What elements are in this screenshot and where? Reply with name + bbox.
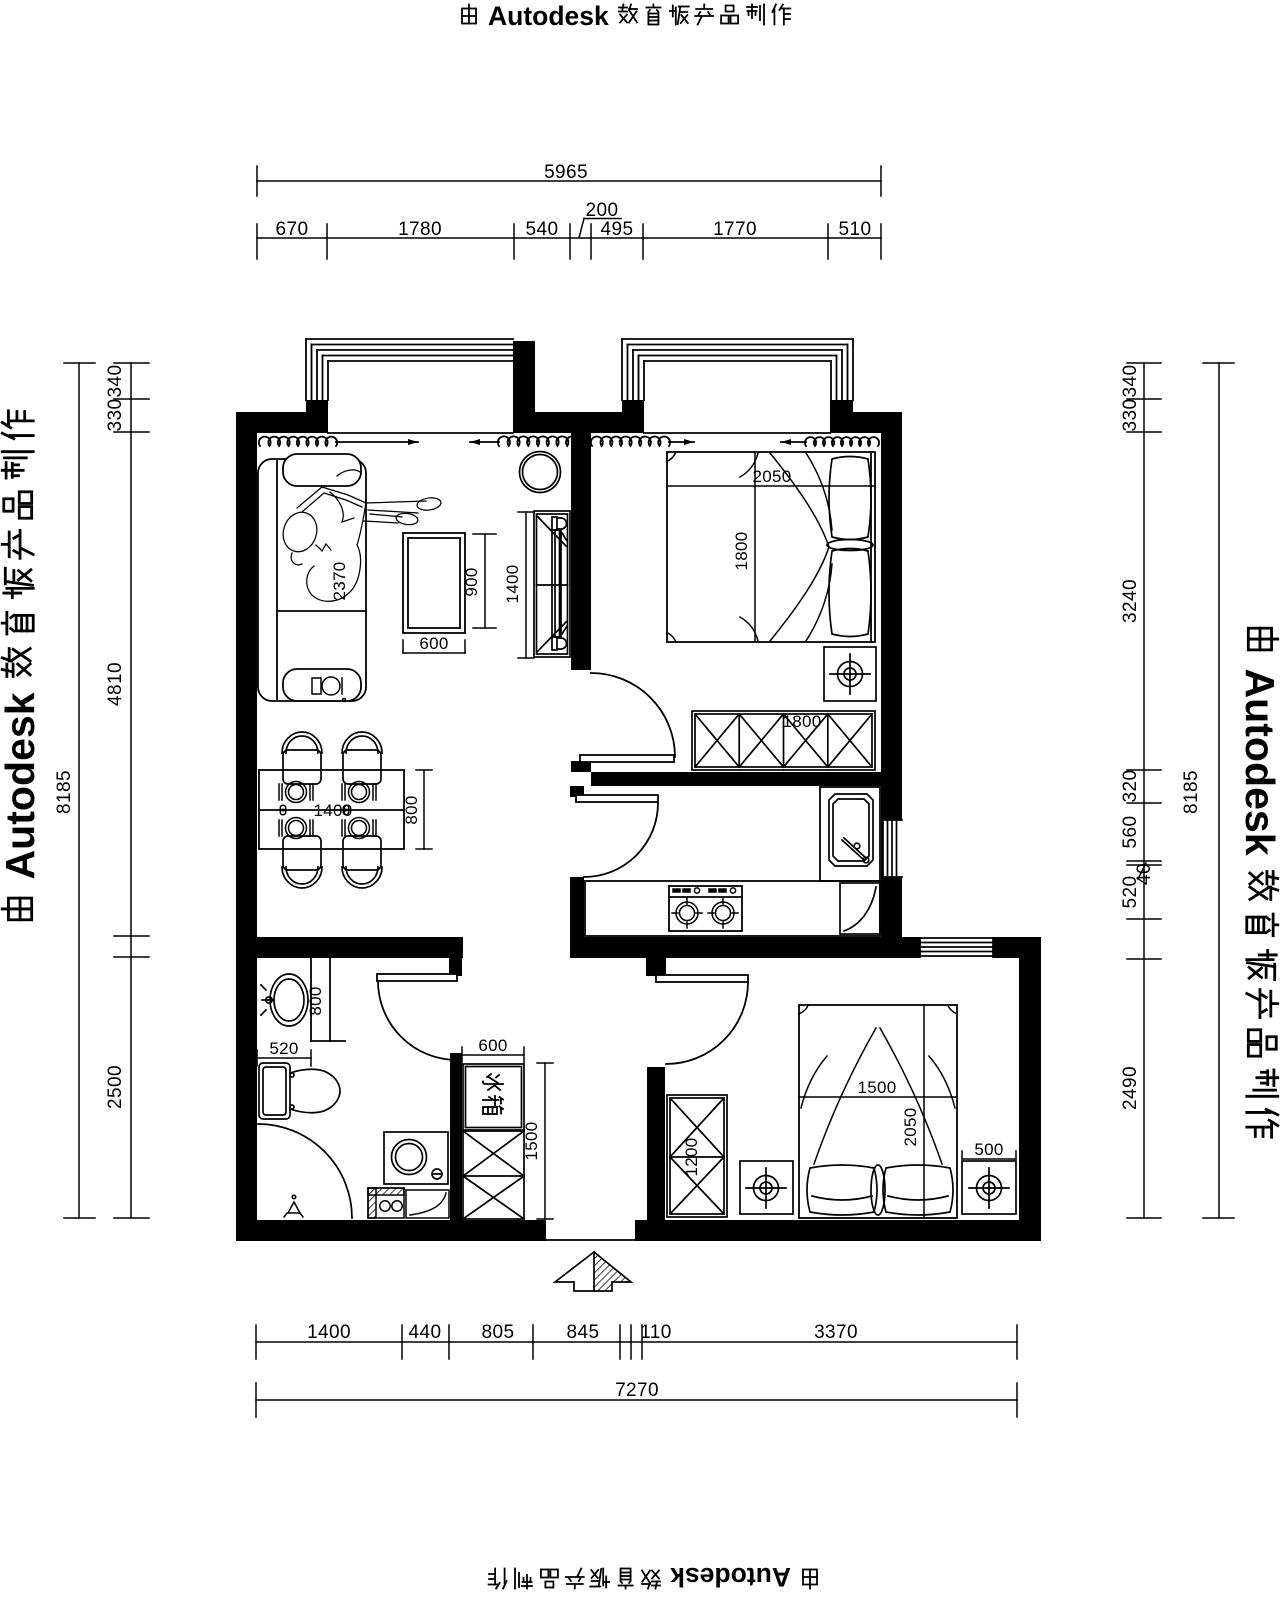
- svg-text:845: 845: [567, 1322, 600, 1343]
- svg-text:670: 670: [276, 219, 309, 240]
- svg-text:600: 600: [419, 634, 448, 653]
- svg-text:2370: 2370: [330, 561, 349, 600]
- svg-text:330: 330: [105, 399, 126, 432]
- svg-text:1770: 1770: [713, 219, 757, 240]
- svg-text:5965: 5965: [544, 162, 588, 183]
- svg-text:1200: 1200: [682, 1137, 701, 1176]
- svg-text:1400: 1400: [503, 564, 522, 603]
- svg-text:7270: 7270: [615, 1380, 659, 1401]
- svg-text:1500: 1500: [857, 1078, 896, 1097]
- svg-text:110: 110: [640, 1322, 672, 1343]
- svg-text:8185: 8185: [1181, 770, 1202, 814]
- svg-text:40: 40: [1134, 863, 1155, 885]
- svg-text:560: 560: [1120, 816, 1141, 849]
- svg-text:1500: 1500: [522, 1121, 541, 1160]
- svg-text:540: 540: [526, 219, 559, 240]
- svg-text:3240: 3240: [1120, 579, 1141, 623]
- svg-text:500: 500: [974, 1140, 1003, 1159]
- svg-text:1400: 1400: [307, 1322, 351, 1343]
- svg-text:2050: 2050: [901, 1107, 920, 1146]
- svg-text:1400: 1400: [313, 801, 352, 820]
- svg-text:200: 200: [586, 200, 619, 221]
- svg-text:805: 805: [482, 1322, 515, 1343]
- svg-text:8185: 8185: [54, 770, 75, 814]
- svg-text:3370: 3370: [814, 1322, 858, 1343]
- svg-text:600: 600: [478, 1036, 507, 1055]
- svg-text:320: 320: [1120, 770, 1141, 803]
- svg-text:520: 520: [269, 1039, 298, 1058]
- svg-text:1800: 1800: [782, 712, 821, 731]
- svg-text:2050: 2050: [752, 467, 791, 486]
- svg-text:800: 800: [306, 986, 325, 1015]
- svg-text:340: 340: [1120, 365, 1141, 398]
- svg-text:1780: 1780: [398, 219, 442, 240]
- svg-text:2500: 2500: [105, 1065, 126, 1109]
- svg-text:900: 900: [462, 567, 481, 596]
- svg-text:340: 340: [105, 365, 126, 398]
- svg-text:440: 440: [409, 1322, 442, 1343]
- svg-text:2490: 2490: [1120, 1066, 1141, 1110]
- svg-text:495: 495: [601, 219, 634, 240]
- svg-text:510: 510: [839, 219, 872, 240]
- svg-text:1800: 1800: [732, 531, 751, 570]
- svg-text:800: 800: [402, 795, 421, 824]
- svg-text:330: 330: [1120, 399, 1141, 432]
- svg-text:4810: 4810: [105, 662, 126, 706]
